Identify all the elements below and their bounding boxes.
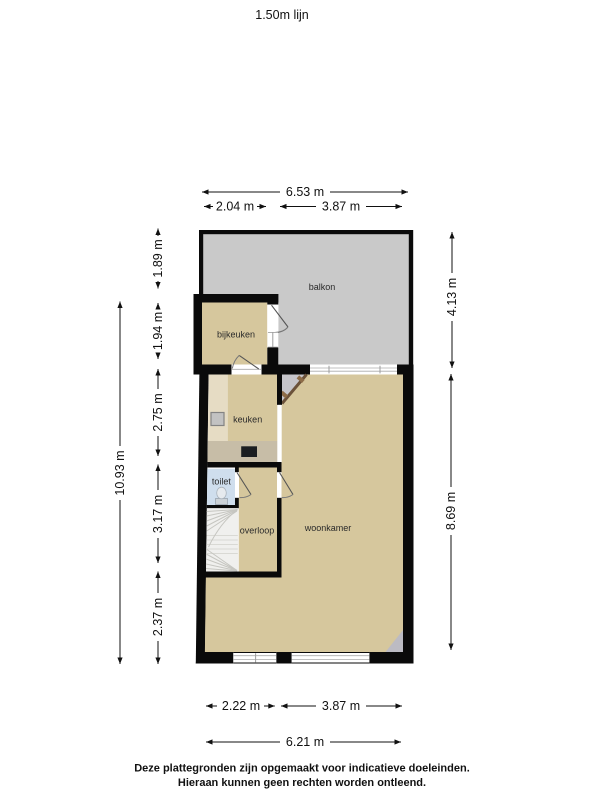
svg-text:3.17 m: 3.17 m	[151, 495, 165, 533]
svg-text:balkon: balkon	[309, 282, 336, 292]
svg-text:6.53 m: 6.53 m	[286, 185, 324, 199]
svg-text:4.13 m: 4.13 m	[445, 278, 459, 316]
svg-text:10.93 m: 10.93 m	[113, 450, 127, 495]
svg-text:1.94 m: 1.94 m	[151, 312, 165, 350]
svg-text:3.87 m: 3.87 m	[322, 200, 360, 214]
svg-text:Hieraan kunnen geen rechten wo: Hieraan kunnen geen rechten worden ontle…	[178, 777, 426, 789]
svg-text:woonkamer: woonkamer	[304, 523, 352, 533]
svg-text:2.37 m: 2.37 m	[151, 598, 165, 636]
svg-text:toilet: toilet	[212, 477, 232, 487]
svg-text:1.50m lijn: 1.50m lijn	[255, 8, 309, 22]
svg-text:keuken: keuken	[233, 415, 262, 425]
svg-text:Deze plattegronden zijn opgema: Deze plattegronden zijn opgemaakt voor i…	[134, 763, 470, 775]
svg-text:2.04 m: 2.04 m	[216, 200, 254, 214]
svg-text:2.75 m: 2.75 m	[151, 393, 165, 431]
svg-text:overloop: overloop	[240, 526, 275, 536]
svg-text:8.69 m: 8.69 m	[444, 492, 458, 530]
svg-text:3.87 m: 3.87 m	[322, 699, 360, 713]
svg-text:bijkeuken: bijkeuken	[217, 330, 255, 340]
svg-text:6.21 m: 6.21 m	[286, 735, 324, 749]
svg-text:2.22 m: 2.22 m	[222, 699, 260, 713]
svg-text:1.89 m: 1.89 m	[151, 239, 165, 277]
